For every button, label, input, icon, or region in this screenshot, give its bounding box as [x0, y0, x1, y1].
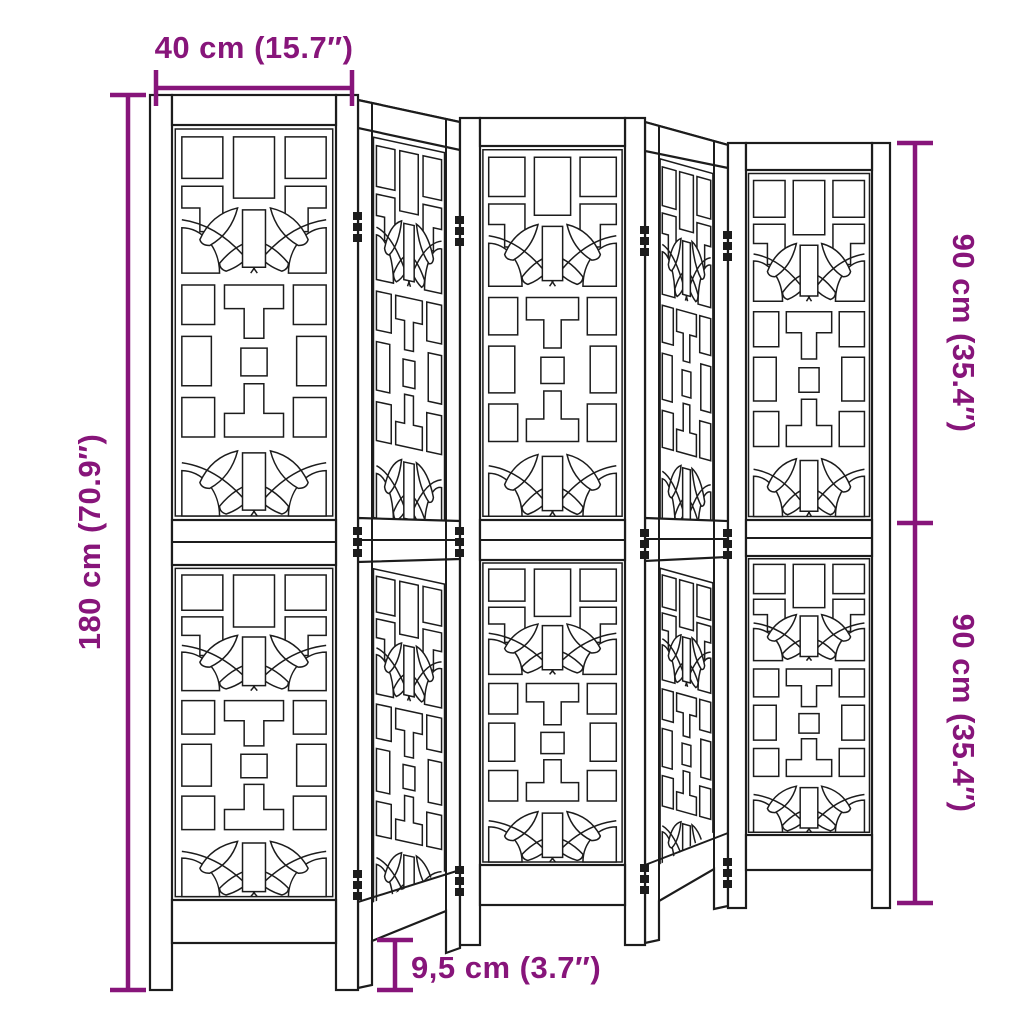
panel-5-front: [728, 143, 890, 908]
dimension-leg-height: 9,5 cm (3.7″): [377, 940, 601, 990]
dimension-lower-section: 90 cm (35.4″): [897, 523, 981, 903]
dimension-upper-section: 90 cm (35.4″): [897, 143, 981, 523]
panel-1-front: [150, 95, 358, 990]
total-height-label: 180 cm (70.9″): [72, 434, 107, 651]
panel-3-front: [460, 118, 645, 945]
room-divider-drawing: 40 cm (15.7″) 180 cm (70.9″) 90 cm (35.4…: [0, 0, 1024, 1024]
lower-section-label: 90 cm (35.4″): [946, 614, 981, 813]
upper-section-label: 90 cm (35.4″): [946, 234, 981, 433]
panel-4-angled: [645, 122, 728, 943]
dimension-diagram: 40 cm (15.7″) 180 cm (70.9″) 90 cm (35.4…: [0, 0, 1024, 1024]
panel-2-angled: [358, 100, 460, 988]
dimension-total-height: 180 cm (70.9″): [72, 95, 146, 990]
panel-width-label: 40 cm (15.7″): [155, 30, 354, 65]
leg-height-label: 9,5 cm (3.7″): [411, 950, 601, 985]
